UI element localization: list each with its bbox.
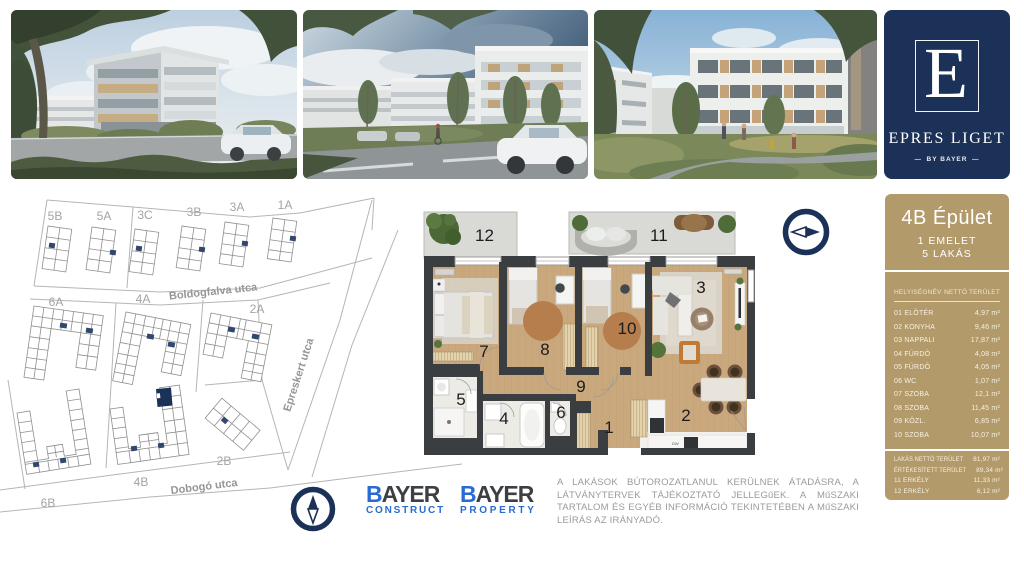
svg-text:6: 6 [556,403,565,422]
svg-text:9: 9 [576,377,585,396]
svg-text:3B: 3B [187,205,202,219]
svg-text:3A: 3A [230,200,245,214]
svg-text:Dobogó utca: Dobogó utca [170,477,239,497]
svg-text:6B: 6B [41,496,56,510]
svg-text:DW: DW [672,441,679,446]
svg-text:1: 1 [604,418,613,437]
svg-text:4: 4 [499,409,508,428]
svg-text:3: 3 [696,278,705,297]
svg-text:7: 7 [479,342,488,361]
svg-text:8: 8 [540,340,549,359]
svg-text:Boldogfalva utca: Boldogfalva utca [168,281,258,302]
svg-text:5A: 5A [97,209,112,223]
svg-text:5B: 5B [48,209,63,223]
svg-text:12: 12 [475,226,494,245]
svg-text:4B: 4B [134,475,149,489]
svg-text:4A: 4A [136,292,151,306]
svg-text:5: 5 [456,390,465,409]
svg-text:6A: 6A [49,295,64,309]
svg-text:2A: 2A [250,302,265,316]
svg-text:10: 10 [618,319,637,338]
svg-text:2: 2 [681,406,690,425]
svg-text:3C: 3C [137,208,153,222]
svg-text:11: 11 [650,226,668,245]
svg-text:2B: 2B [217,454,232,468]
svg-text:1A: 1A [278,198,293,212]
